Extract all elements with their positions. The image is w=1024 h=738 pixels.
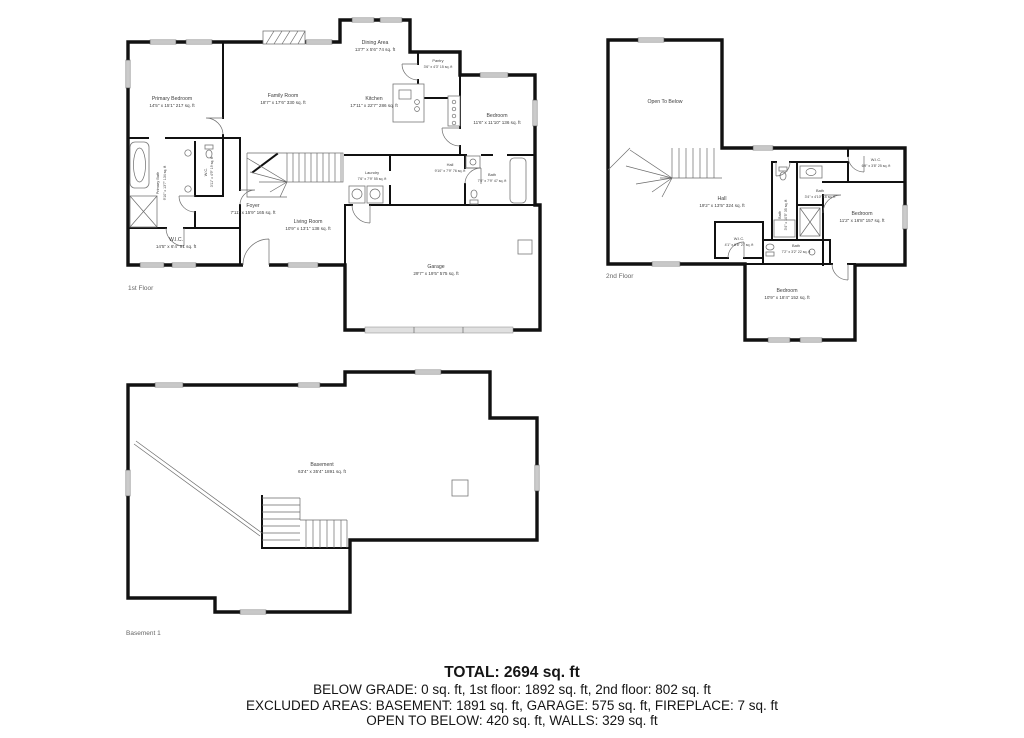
room-label-primary-bedroom: Primary Bedroom [152, 96, 192, 102]
first-floor-labels: Primary Bedroom 14'5" x 15'1" 217 sq. ft… [128, 40, 521, 292]
caption-basement: Basement 1 [126, 630, 161, 637]
room-label-wc: W.C. 3'11" x 4'9" 19 sq. ft [203, 157, 214, 187]
room-label-garage: Garage [427, 264, 444, 270]
laundry-machines [349, 186, 383, 203]
basement-plan: Basement 63'4" x 35'4" 1891 sq. ft Basem… [118, 360, 548, 645]
svg-text:11'2" x 16'8" 157 sq. ft: 11'2" x 16'8" 157 sq. ft [839, 218, 885, 223]
room-label-pantry: Pantry [432, 58, 443, 63]
room-label-bedroom-bottom: Bedroom [776, 288, 797, 294]
room-label-bedroom: Bedroom [486, 113, 507, 119]
summary-below-grade: BELOW GRADE: 0 sq. ft, 1st floor: 1892 s… [0, 682, 1024, 698]
room-label-dining-area: Dining Area [362, 40, 389, 46]
svg-text:17'11" x 22'7" 286 sq. ft: 17'11" x 22'7" 286 sq. ft [350, 103, 398, 108]
summary-excluded-areas: EXCLUDED AREAS: BASEMENT: 1891 sq. ft, G… [0, 698, 1024, 714]
svg-text:W.C.: W.C. [203, 168, 208, 176]
kitchen-fixtures [393, 84, 460, 126]
basement-detail [452, 480, 468, 496]
basement-windows [126, 370, 539, 614]
first-floor-plan: Primary Bedroom 14'5" x 15'1" 217 sq. ft… [118, 12, 550, 342]
svg-text:18'7" x 17'6" 330 sq. ft: 18'7" x 17'6" 330 sq. ft [260, 100, 306, 105]
garage-detail [365, 240, 532, 333]
summary-total: TOTAL: 2694 sq. ft [0, 664, 1024, 682]
svg-text:19'2" x 13'5" 324 sq. ft: 19'2" x 13'5" 324 sq. ft [699, 203, 745, 208]
room-label-bath-bottom: Bath [792, 243, 800, 248]
svg-text:14'5" x 15'1" 217 sq. ft: 14'5" x 15'1" 217 sq. ft [149, 103, 195, 108]
stairs-second-floor [608, 148, 722, 197]
second-floor-walls [608, 40, 905, 340]
svg-text:Primary Bath: Primary Bath [155, 172, 160, 195]
room-label-bedroom-right: Bedroom [851, 211, 872, 217]
summary-open-to-below: OPEN TO BELOW: 420 sq. ft, WALLS: 329 sq… [0, 713, 1024, 729]
room-label-wic-top: W.I.C. [871, 157, 882, 162]
svg-text:3'6" x 4'3" 15 sq. ft: 3'6" x 4'3" 15 sq. ft [424, 65, 453, 69]
svg-text:10'9" x 13'1" 138 sq. ft: 10'9" x 13'1" 138 sq. ft [285, 226, 331, 231]
room-label-wic-bottom: W.I.C. [734, 236, 745, 241]
svg-text:9'10" x 13'7" 134 sq. ft: 9'10" x 13'7" 134 sq. ft [163, 166, 167, 201]
room-label-laundry: Laundry [365, 170, 379, 175]
linen-closet [800, 208, 820, 236]
caption-first-floor: 1st Floor [128, 285, 154, 292]
room-label-kitchen: Kitchen [365, 96, 382, 102]
svg-text:6'9" x 3'8" 25 sq. ft: 6'9" x 3'8" 25 sq. ft [862, 164, 891, 168]
room-label-wic: W.I.C. [169, 237, 183, 243]
room-label-foyer: Foyer [246, 203, 260, 209]
room-label-bath-small: Bath [816, 188, 824, 193]
caption-second-floor: 2nd Floor [606, 273, 634, 280]
first-floor-windows [126, 18, 537, 267]
svg-text:3'4" x 10'5" 35 sq. ft: 3'4" x 10'5" 35 sq. ft [784, 200, 788, 231]
svg-text:13'7" x 5'6" 74 sq. ft: 13'7" x 5'6" 74 sq. ft [355, 47, 396, 52]
bath-fixtures [130, 142, 213, 227]
room-label-primary-bath: Primary Bath 9'10" x 13'7" 134 sq. ft [155, 166, 167, 201]
stairs-basement [134, 441, 348, 548]
svg-text:4'1" x 6'8" 27 sq. ft: 4'1" x 6'8" 27 sq. ft [725, 243, 754, 247]
svg-text:7'11" x 15'9" 165 sq. ft: 7'11" x 15'9" 165 sq. ft [230, 210, 276, 215]
room-label-basement: Basement [310, 462, 334, 468]
room-label-hall-2: Hall [718, 196, 727, 202]
room-label-family-room: Family Room [268, 93, 299, 99]
first-floor-walls [128, 20, 540, 330]
room-label-hall: Hall [447, 162, 454, 167]
svg-text:3'4" x 4'10" 16 sq. ft: 3'4" x 4'10" 16 sq. ft [805, 195, 836, 199]
basement-walls [128, 372, 537, 612]
svg-text:9'10" x 7'9" 76 sq. ft: 9'10" x 7'9" 76 sq. ft [435, 169, 466, 173]
svg-text:29'7" x 19'5" 575 sq. ft: 29'7" x 19'5" 575 sq. ft [413, 271, 459, 276]
area-summary: TOTAL: 2694 sq. ft BELOW GRADE: 0 sq. ft… [0, 664, 1024, 729]
svg-text:14'5" x 6'4" 91 sq. ft: 14'5" x 6'4" 91 sq. ft [156, 244, 197, 249]
stairs-first-floor [247, 153, 343, 197]
fireplace [263, 31, 305, 44]
svg-text:Bath: Bath [777, 211, 782, 219]
svg-text:63'4" x 35'4" 1891 sq. ft: 63'4" x 35'4" 1891 sq. ft [298, 469, 347, 474]
second-floor-plan: Open To Below Hall 19'2" x 13'5" 324 sq.… [600, 30, 910, 350]
room-label-bath: Bath [488, 172, 496, 177]
floorplan-page: Primary Bedroom 14'5" x 15'1" 217 sq. ft… [0, 0, 1024, 738]
room-label-living-room: Living Room [294, 219, 323, 225]
room-label-open-to-below: Open To Below [647, 99, 682, 105]
svg-text:3'11" x 4'9" 19 sq. ft: 3'11" x 4'9" 19 sq. ft [210, 157, 214, 187]
svg-text:7'6" x 7'9" 55 sq. ft: 7'6" x 7'9" 55 sq. ft [358, 177, 387, 181]
svg-text:11'6" x 11'10" 136 sq. ft: 11'6" x 11'10" 136 sq. ft [473, 120, 521, 125]
svg-text:7'0" x 7'9" 47 sq. ft: 7'0" x 7'9" 47 sq. ft [478, 179, 507, 183]
svg-text:10'9" x 18'4" 152 sq. ft: 10'9" x 18'4" 152 sq. ft [764, 295, 810, 300]
svg-text:7'2" x 3'2" 22 sq. ft: 7'2" x 3'2" 22 sq. ft [782, 250, 811, 254]
